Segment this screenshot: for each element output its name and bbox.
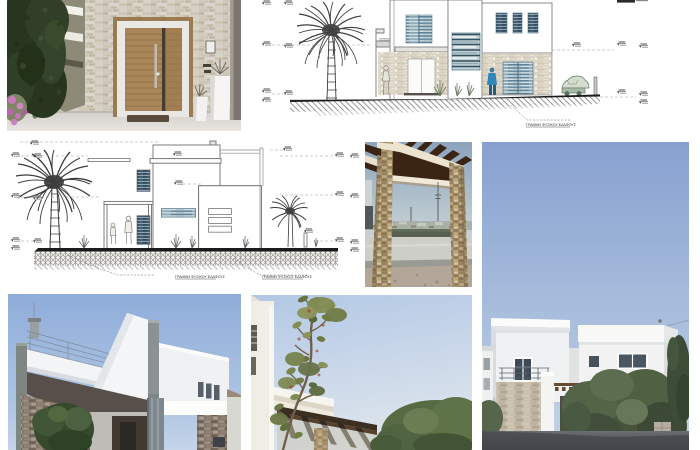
svg-text:ΓΡΑΜΜΗ ΦΥΣΙΚΟΥ ΕΔΑΦΟΥΣ: ΓΡΑΜΜΗ ΦΥΣΙΚΟΥ ΕΔΑΦΟΥΣ <box>526 123 577 127</box>
svg-text:ΓΡΑΜΜΗ ΦΥΣΙΚΟΥ ΕΔΑΦΟΥΣ: ΓΡΑΜΜΗ ΦΥΣΙΚΟΥ ΕΔΑΦΟΥΣ <box>262 275 313 279</box>
svg-text:ΓΡΑΜΜΗ ΦΥΣΙΚΟΥ ΕΔΑΦΟΥΣ: ΓΡΑΜΜΗ ΦΥΣΙΚΟΥ ΕΔΑΦΟΥΣ <box>175 275 226 279</box>
